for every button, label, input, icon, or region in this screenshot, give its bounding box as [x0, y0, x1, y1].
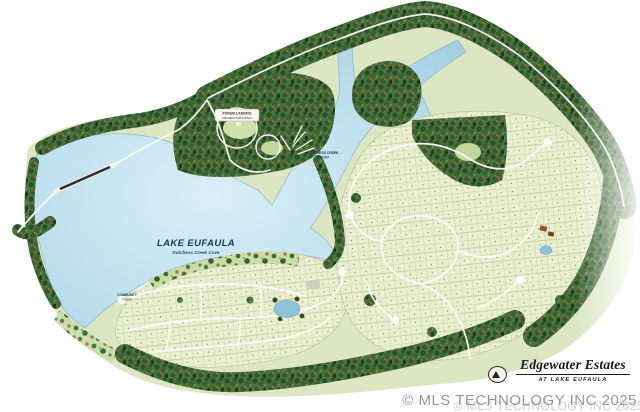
listing-map-screenshot: Porum Landing Road PORUM LANDING RECREAT…	[0, 0, 640, 412]
cul-de-sac	[392, 317, 398, 323]
cul-de-sac	[545, 139, 552, 146]
svg-text:LAKE EUFAULA: LAKE EUFAULA	[157, 238, 235, 249]
inlet-woods	[352, 61, 422, 127]
pond	[274, 301, 300, 318]
cul-de-sac	[517, 277, 523, 283]
recreation-building	[236, 122, 241, 126]
title-block: Edgewater Estates AT LAKE EUFAULA	[486, 358, 636, 383]
svg-text:MARINA: MARINA	[317, 156, 330, 160]
svg-text:RECREATION AREA: RECREATION AREA	[222, 116, 252, 120]
svg-text:PORUM LANDING: PORUM LANDING	[222, 111, 251, 115]
cul-de-sac	[347, 212, 353, 218]
svg-text:COMMUNITY: COMMUNITY	[117, 293, 138, 297]
svg-text:Dutchess Creek Cove: Dutchess Creek Cove	[172, 250, 220, 255]
pond-right	[540, 246, 552, 255]
recreation-area-label: PORUM LANDING RECREATION AREA	[215, 109, 259, 121]
mls-watermark: © MLS TECHNOLOGY INC 2025	[402, 392, 637, 409]
svg-text:DOCK: DOCK	[122, 297, 132, 301]
title-rule	[516, 374, 630, 375]
svg-text:DUTCHESS CREEK: DUTCHESS CREEK	[307, 151, 339, 155]
edge-fade	[575, 0, 640, 412]
estate-subtitle: AT LAKE EUFAULA	[516, 377, 630, 383]
cul-de-sac	[339, 269, 345, 275]
map-illustration: Porum Landing Road PORUM LANDING RECREAT…	[0, 0, 640, 412]
estate-title: Edgewater Estates	[516, 358, 630, 372]
developer-logo-icon	[488, 366, 507, 383]
